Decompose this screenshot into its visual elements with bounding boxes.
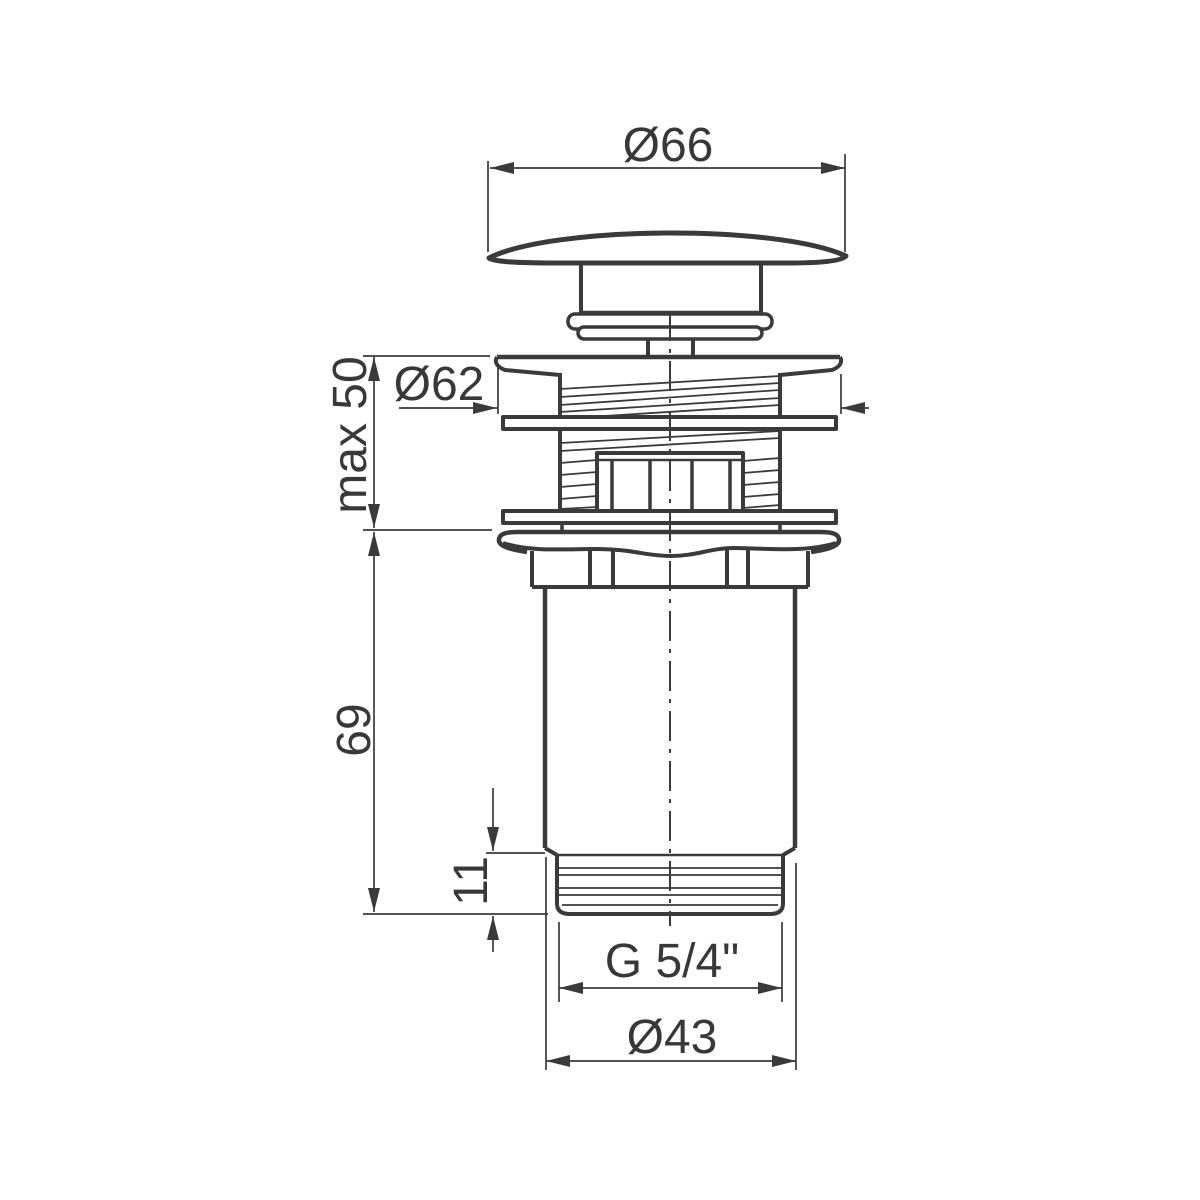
dim-o62-arrow-right	[841, 402, 865, 414]
top-flange	[496, 357, 841, 375]
dim-o43-arrow-left	[546, 1055, 570, 1067]
dim-o66-arrow-left	[490, 162, 514, 174]
dim-g54-arrow-right	[758, 982, 782, 994]
dim-label-cap-diameter: Ø66	[623, 119, 714, 172]
dim-flange-diameter: Ø62	[394, 358, 869, 414]
dim-label-flange-diameter: Ø62	[394, 358, 485, 411]
cap-stem	[648, 339, 693, 357]
dim-11-arrow-down	[487, 827, 499, 851]
lower-thread-side-lines-right	[743, 458, 780, 508]
dim-body-length: 69	[328, 532, 548, 914]
dim-69-arrow-top	[368, 532, 380, 556]
lower-thread-side-lines-left	[560, 460, 597, 509]
dim-thread-size: G 5/4"	[559, 922, 782, 1002]
dim-o43-arrow-right	[772, 1055, 796, 1067]
dim-g54-arrow-left	[559, 982, 583, 994]
dim-o66-arrow-right	[821, 162, 845, 174]
drawing-canvas: Ø66 Ø62 max 50 69 11	[0, 0, 1200, 1200]
dim-thread-length: 11	[445, 788, 545, 952]
flange-right-end	[780, 357, 841, 375]
dim-label-thread-length: 11	[445, 856, 498, 906]
dim-label-body-length: 69	[328, 703, 381, 756]
technical-drawing: Ø66 Ø62 max 50 69 11	[0, 0, 1200, 1200]
flange-left-end	[496, 357, 560, 375]
cap-neck	[581, 264, 761, 313]
dim-69-arrow-bottom	[368, 888, 380, 912]
cap	[489, 233, 846, 357]
dim-11-arrow-up	[487, 916, 499, 940]
dim-label-clamp-range: max 50	[324, 356, 377, 513]
cap-dome	[489, 233, 846, 263]
dim-label-thread-size: G 5/4"	[605, 935, 739, 988]
dim-label-body-diameter: Ø43	[627, 1011, 718, 1064]
